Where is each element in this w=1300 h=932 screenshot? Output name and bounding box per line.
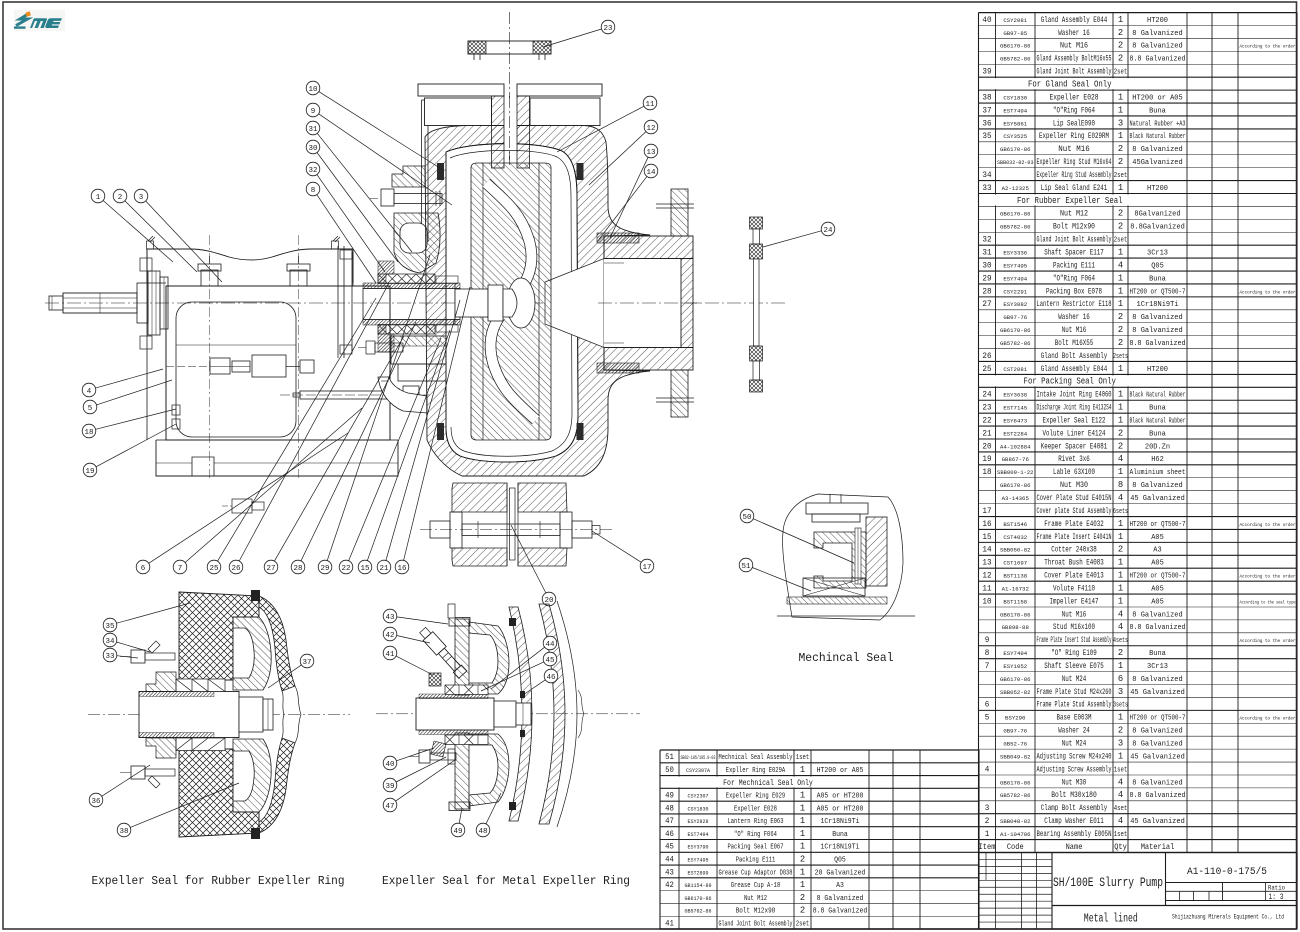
svg-text:Item: Item xyxy=(979,843,996,852)
svg-text:Expeller Ring E029RM: Expeller Ring E029RM xyxy=(1039,133,1109,141)
svg-text:According to the order: According to the order xyxy=(1240,638,1296,644)
svg-text:25: 25 xyxy=(209,565,219,573)
svg-text:HT200 or QT500-7: HT200 or QT500-7 xyxy=(1130,288,1186,296)
svg-text:"O" Ring F064: "O" Ring F064 xyxy=(734,831,777,839)
svg-text:24: 24 xyxy=(823,227,833,235)
svg-text:2: 2 xyxy=(1118,441,1123,451)
svg-text:A05: A05 xyxy=(1151,534,1164,542)
svg-text:3Cr13: 3Cr13 xyxy=(1147,663,1168,671)
svg-text:BST1138: BST1138 xyxy=(1003,573,1027,580)
svg-text:1Cr18Ni9Ti: 1Cr18Ni9Ti xyxy=(1137,301,1179,309)
svg-text:1: 1 xyxy=(1118,390,1123,400)
svg-text:Nut M24: Nut M24 xyxy=(1062,741,1087,749)
svg-text:GB5782-86: GB5782-86 xyxy=(1000,792,1031,799)
svg-text:40: 40 xyxy=(982,15,991,25)
svg-text:8.8 Galvanized: 8.8 Galvanized xyxy=(1130,56,1186,64)
svg-text:Clamp Bolt Assembly: Clamp Bolt Assembly xyxy=(1041,805,1108,813)
svg-text:ESY3082: ESY3082 xyxy=(1003,301,1027,308)
svg-text:51: 51 xyxy=(665,752,674,762)
svg-text:8: 8 xyxy=(311,187,316,195)
svg-text:4: 4 xyxy=(1118,777,1123,787)
svg-text:Shijiazhuang Minerals Equipmen: Shijiazhuang Minerals Equipment Co., Ltd xyxy=(1172,914,1284,921)
svg-text:1: 1 xyxy=(1118,415,1123,425)
svg-text:2: 2 xyxy=(1118,157,1123,167)
svg-text:According to the order: According to the order xyxy=(1240,289,1296,295)
svg-text:A3-14365: A3-14365 xyxy=(1002,495,1030,502)
svg-text:13: 13 xyxy=(646,149,656,157)
svg-text:13: 13 xyxy=(982,558,991,568)
svg-text:44: 44 xyxy=(545,641,555,649)
svg-text:1: 1 xyxy=(1118,403,1123,413)
svg-text:2: 2 xyxy=(1118,41,1123,51)
svg-text:5: 5 xyxy=(985,713,990,723)
svg-text:45 Galvanized: 45 Galvanized xyxy=(1130,689,1185,697)
svg-text:8.8 Galvanized: 8.8 Galvanized xyxy=(1130,792,1186,800)
svg-text:2: 2 xyxy=(1118,428,1123,438)
svg-text:Nut M30: Nut M30 xyxy=(1062,779,1087,787)
svg-text:Expeller Ring E029: Expeller Ring E029 xyxy=(726,793,786,801)
svg-text:34: 34 xyxy=(982,170,991,180)
svg-text:34: 34 xyxy=(105,638,115,646)
svg-text:4set: 4set xyxy=(1114,805,1128,813)
svg-text:8: 8 xyxy=(1118,480,1123,490)
svg-text:ESY7495: ESY7495 xyxy=(688,856,709,863)
svg-text:45 Galvanized: 45 Galvanized xyxy=(1130,495,1185,503)
svg-text:3: 3 xyxy=(1118,687,1123,697)
svg-text:Expeller E028: Expeller E028 xyxy=(1050,94,1099,102)
svg-text:50: 50 xyxy=(665,765,674,775)
svg-text:26: 26 xyxy=(231,565,241,573)
svg-text:18: 18 xyxy=(982,467,991,477)
svg-text:CST2081: CST2081 xyxy=(1003,366,1027,373)
svg-text:Discharge Joint Ring E4132S4: Discharge Joint Ring E4132S4 xyxy=(1037,405,1112,413)
svg-text:A1-110-0-175/5: A1-110-0-175/5 xyxy=(1187,866,1267,878)
svg-text:28: 28 xyxy=(293,565,302,573)
svg-text:EST2899: EST2899 xyxy=(688,869,709,876)
svg-text:A05: A05 xyxy=(1151,560,1164,568)
svg-text:8 Galvanized: 8 Galvanized xyxy=(1132,482,1182,490)
svg-text:GB5782-86: GB5782-86 xyxy=(1000,340,1031,347)
svg-text:SBB009-1-22: SBB009-1-22 xyxy=(997,469,1034,476)
svg-text:Packing E111: Packing E111 xyxy=(736,856,776,864)
svg-text:Mechincal Seal: Mechincal Seal xyxy=(799,651,894,665)
svg-text:2: 2 xyxy=(800,854,805,864)
svg-text:Frame Plate Stud Assembly: Frame Plate Stud Assembly xyxy=(1037,702,1112,710)
svg-text:1: 1 xyxy=(800,791,805,801)
svg-text:Packing Seal E067: Packing Seal E067 xyxy=(727,844,783,852)
svg-text:8 Galvanized: 8 Galvanized xyxy=(1132,779,1182,787)
svg-text:1: 1 xyxy=(800,867,805,877)
svg-text:4: 4 xyxy=(1118,609,1123,619)
svg-text:Material: Material xyxy=(1141,843,1175,852)
svg-text:2: 2 xyxy=(1118,338,1123,348)
svg-text:Gland Assembly E044: Gland Assembly E044 xyxy=(1041,17,1108,25)
svg-text:1: 1 xyxy=(800,803,805,813)
svg-text:21: 21 xyxy=(982,428,991,438)
svg-text:42: 42 xyxy=(385,632,394,640)
svg-text:1: 1 xyxy=(1118,532,1123,542)
svg-text:8 Galvanized: 8 Galvanized xyxy=(1132,728,1182,736)
svg-text:16: 16 xyxy=(982,519,991,529)
svg-text:9: 9 xyxy=(311,108,316,116)
svg-text:HT200: HT200 xyxy=(1147,185,1168,193)
svg-text:29: 29 xyxy=(320,565,329,573)
svg-text:Impeller E4147: Impeller E4147 xyxy=(1050,598,1099,606)
svg-text:ESY3336: ESY3336 xyxy=(1003,249,1027,256)
svg-text:8 Galvanized: 8 Galvanized xyxy=(1132,314,1182,322)
svg-text:Gland Bolt Assembly: Gland Bolt Assembly xyxy=(1041,353,1108,361)
svg-text:Cover Plate Stud E4015N: Cover Plate Stud E4015N xyxy=(1037,495,1112,503)
svg-text:Q05: Q05 xyxy=(1151,262,1164,270)
svg-text:16: 16 xyxy=(397,565,407,573)
svg-text:ESY1052: ESY1052 xyxy=(1003,663,1027,670)
svg-text:46: 46 xyxy=(665,829,674,839)
svg-text:A05 or HT200: A05 or HT200 xyxy=(817,793,864,801)
svg-text:Nut M30: Nut M30 xyxy=(1060,482,1088,490)
svg-text:ESY7494: ESY7494 xyxy=(1003,650,1027,657)
svg-text:19: 19 xyxy=(982,454,991,464)
svg-text:CSY1830: CSY1830 xyxy=(688,805,710,812)
svg-text:Bolt M30x180: Bolt M30x180 xyxy=(1051,792,1097,800)
svg-text:4: 4 xyxy=(1118,816,1123,826)
svg-text:1: 1 xyxy=(1118,661,1123,671)
svg-text:45 Galvanized: 45 Galvanized xyxy=(1130,753,1185,761)
svg-text:1: 1 xyxy=(800,880,805,890)
svg-text:Keeper Spacer E4081: Keeper Spacer E4081 xyxy=(1041,443,1108,451)
svg-text:31: 31 xyxy=(308,126,318,134)
svg-text:Packing Box E078: Packing Box E078 xyxy=(1046,288,1102,296)
svg-text:1: 1 xyxy=(1118,273,1123,283)
svg-text:2set: 2set xyxy=(1114,237,1128,245)
svg-text:SBB048-82: SBB048-82 xyxy=(1000,818,1031,825)
svg-text:GB6170-86: GB6170-86 xyxy=(1000,43,1031,50)
svg-text:A05: A05 xyxy=(1151,585,1164,593)
svg-text:SBB052-82: SBB052-82 xyxy=(1000,689,1031,696)
svg-text:1Cr18Ni9Ti: 1Cr18Ni9Ti xyxy=(821,818,860,826)
svg-text:6: 6 xyxy=(141,565,146,573)
svg-text:GB5782-86: GB5782-86 xyxy=(1000,224,1031,231)
svg-text:Frame Plate Insert E4041N: Frame Plate Insert E4041N xyxy=(1037,534,1112,542)
svg-text:Nut M16: Nut M16 xyxy=(1062,611,1087,619)
svg-text:17: 17 xyxy=(642,564,651,572)
svg-text:4: 4 xyxy=(1118,493,1123,503)
svg-text:HT200: HT200 xyxy=(1147,17,1168,25)
svg-text:CSY1830: CSY1830 xyxy=(1003,94,1027,101)
svg-text:22: 22 xyxy=(341,565,350,573)
svg-text:2: 2 xyxy=(1118,222,1123,232)
svg-text:41: 41 xyxy=(665,918,674,928)
svg-text:32: 32 xyxy=(982,235,991,245)
svg-text:According to the order: According to the order xyxy=(1240,522,1296,528)
svg-text:1: 1 xyxy=(96,194,101,202)
svg-text:BST1546: BST1546 xyxy=(1003,521,1027,528)
svg-text:3: 3 xyxy=(985,803,990,813)
svg-text:Expeller E028: Expeller E028 xyxy=(734,805,777,813)
svg-text:H62: H62 xyxy=(1151,456,1164,464)
svg-text:Volute Liner E4124: Volute Liner E4124 xyxy=(1043,430,1106,438)
svg-text:HT200 or QT500-7: HT200 or QT500-7 xyxy=(1130,573,1186,581)
svg-text:45: 45 xyxy=(545,657,555,665)
svg-text:Aluminium sheet: Aluminium sheet xyxy=(1130,469,1186,477)
svg-text:38: 38 xyxy=(982,92,991,102)
svg-text:ESY3638: ESY3638 xyxy=(1003,392,1027,399)
svg-text:Gland Joint Bolt Assembly: Gland Joint Bolt Assembly xyxy=(1037,69,1112,77)
svg-text:1: 1 xyxy=(800,816,805,826)
svg-text:GB52-76: GB52-76 xyxy=(1003,741,1027,748)
svg-text:8 Galvanized: 8 Galvanized xyxy=(1132,676,1182,684)
svg-text:4: 4 xyxy=(87,388,92,396)
svg-text:1: 1 xyxy=(1118,713,1123,723)
svg-text:35: 35 xyxy=(982,131,991,141)
svg-text:1: 1 xyxy=(1118,183,1123,193)
svg-text:8 Galvanized: 8 Galvanized xyxy=(1132,741,1182,749)
svg-text:49: 49 xyxy=(453,828,462,836)
svg-text:Gland Assembly BoltM16x55: Gland Assembly BoltM16x55 xyxy=(1037,56,1112,64)
svg-text:Q05: Q05 xyxy=(834,856,846,864)
svg-text:HT200 or QT500-7: HT200 or QT500-7 xyxy=(1130,521,1186,529)
svg-text:Lantern Restrictor E118: Lantern Restrictor E118 xyxy=(1037,301,1112,309)
svg-text:CST4032: CST4032 xyxy=(1003,534,1027,541)
svg-text:ESY6473: ESY6473 xyxy=(1003,417,1027,424)
svg-text:25: 25 xyxy=(982,364,991,374)
svg-text:For Packing Seal Only: For Packing Seal Only xyxy=(1024,376,1117,387)
svg-text:"O"Ring F064: "O"Ring F064 xyxy=(1053,107,1095,115)
svg-text:20 Galvanized: 20 Galvanized xyxy=(815,869,866,877)
svg-text:Buna: Buna xyxy=(1149,275,1166,283)
svg-text:21: 21 xyxy=(379,565,389,573)
svg-text:Clamp Washer E011: Clamp Washer E011 xyxy=(1044,818,1104,826)
svg-text:Code: Code xyxy=(1007,843,1024,852)
svg-text:12: 12 xyxy=(646,125,655,133)
svg-text:GB898-88: GB898-88 xyxy=(1002,624,1030,631)
svg-text:Black Natural Rubber: Black Natural Rubber xyxy=(1130,417,1186,425)
svg-text:2set: 2set xyxy=(1114,172,1128,180)
svg-text:Nut M16: Nut M16 xyxy=(1060,43,1088,51)
svg-text:"O"Ring F064: "O"Ring F064 xyxy=(1053,275,1095,283)
svg-text:12: 12 xyxy=(982,571,991,581)
svg-text:41: 41 xyxy=(385,651,395,659)
svg-text:43: 43 xyxy=(385,614,395,622)
svg-text:27: 27 xyxy=(266,565,275,573)
svg-text:51: 51 xyxy=(741,563,751,571)
svg-text:Cover Plate E4013: Cover Plate E4013 xyxy=(1044,573,1104,581)
svg-text:EST7494: EST7494 xyxy=(1003,107,1027,114)
svg-text:14: 14 xyxy=(646,169,656,177)
svg-text:1set: 1set xyxy=(1114,766,1128,774)
svg-text:Buna: Buna xyxy=(1149,430,1166,438)
svg-text:GB5782-86: GB5782-86 xyxy=(685,908,712,915)
svg-text:8: 8 xyxy=(985,648,990,658)
svg-text:1: 1 xyxy=(985,829,990,839)
svg-text:EST7145: EST7145 xyxy=(1003,405,1027,412)
svg-text:Expller Ring E029A: Expller Ring E029A xyxy=(726,767,786,775)
svg-text:GB1154-89: GB1154-89 xyxy=(685,882,712,889)
svg-text:2: 2 xyxy=(1118,312,1123,322)
svg-text:36: 36 xyxy=(91,798,101,806)
svg-text:1: 1 xyxy=(800,842,805,852)
svg-text:Mechnical Seal Assembly: Mechnical Seal Assembly xyxy=(719,754,793,762)
svg-text:48: 48 xyxy=(478,828,487,836)
svg-text:Rivet 3x6: Rivet 3x6 xyxy=(1058,456,1090,464)
svg-text:1: 1 xyxy=(800,765,805,775)
svg-text:26: 26 xyxy=(982,351,991,361)
svg-text:2: 2 xyxy=(1118,545,1123,555)
svg-text:According to the seal type: According to the seal type xyxy=(1240,599,1296,605)
svg-text:30: 30 xyxy=(308,145,318,153)
svg-text:Black Natural Rubber: Black Natural Rubber xyxy=(1130,392,1186,400)
svg-text:Expeller Seal for Rubber Expel: Expeller Seal for Rubber Expeller Ring xyxy=(92,875,345,888)
svg-text:4: 4 xyxy=(1118,454,1123,464)
svg-text:A2-12325: A2-12325 xyxy=(1002,185,1030,192)
svg-text:20D.Zn: 20D.Zn xyxy=(1145,443,1170,451)
svg-text:36: 36 xyxy=(982,118,991,128)
svg-text:8.8Galvanized: 8.8Galvanized xyxy=(1130,224,1185,232)
svg-text:Gland Joint Bolt Assembly: Gland Joint Bolt Assembly xyxy=(1037,237,1112,245)
svg-text:Lable 63X100: Lable 63X100 xyxy=(1053,469,1095,477)
svg-text:1: 1 xyxy=(1118,286,1123,296)
svg-text:22: 22 xyxy=(982,415,991,425)
svg-text:GB6170-86: GB6170-86 xyxy=(1000,482,1031,489)
svg-text:Buna: Buna xyxy=(1149,650,1166,658)
svg-text:17: 17 xyxy=(982,506,991,516)
svg-text:SBB032-82-03: SBB032-82-03 xyxy=(997,159,1034,166)
svg-text:45 Galvanized: 45 Galvanized xyxy=(1130,818,1185,826)
svg-text:2: 2 xyxy=(1118,648,1123,658)
svg-text:1: 1 xyxy=(1118,131,1123,141)
svg-text:EST7494: EST7494 xyxy=(688,831,710,838)
svg-text:31: 31 xyxy=(982,247,991,257)
svg-text:2: 2 xyxy=(1118,726,1123,736)
svg-text:Bolt M12x90: Bolt M12x90 xyxy=(736,908,776,916)
svg-text:5: 5 xyxy=(88,405,93,413)
svg-text:15: 15 xyxy=(360,565,370,573)
svg-text:3sets: 3sets xyxy=(1113,702,1128,710)
svg-text:According to the order: According to the order xyxy=(1240,716,1296,722)
svg-text:3Cr13: 3Cr13 xyxy=(1147,249,1168,257)
svg-text:A05 or HT200: A05 or HT200 xyxy=(817,805,864,813)
svg-text:CSY2291: CSY2291 xyxy=(1003,288,1027,295)
svg-text:Metal lined: Metal lined xyxy=(1084,913,1138,926)
svg-text:50: 50 xyxy=(742,514,752,522)
svg-text:SBB050-82: SBB050-82 xyxy=(1000,547,1031,554)
svg-text:Shaft Sleeve E075: Shaft Sleeve E075 xyxy=(1044,663,1104,671)
svg-text:GB6170-86: GB6170-86 xyxy=(1000,779,1031,786)
svg-text:42: 42 xyxy=(665,880,674,890)
svg-text:Intake Joint Ring E4060: Intake Joint Ring E4060 xyxy=(1037,392,1112,400)
svg-text:30: 30 xyxy=(982,260,991,270)
svg-text:2sets: 2sets xyxy=(1113,353,1128,361)
svg-text:Adjusting Screw M24x240: Adjusting Screw M24x240 xyxy=(1037,753,1112,761)
svg-text:4: 4 xyxy=(1118,790,1123,800)
svg-text:32: 32 xyxy=(308,167,317,175)
svg-text:1: 1 xyxy=(1118,299,1123,309)
svg-text:1: 1 xyxy=(1118,583,1123,593)
svg-text:GB6170-86: GB6170-86 xyxy=(685,895,712,902)
svg-text:49: 49 xyxy=(665,791,674,801)
svg-text:33: 33 xyxy=(105,653,115,661)
svg-text:4: 4 xyxy=(985,764,990,774)
svg-text:SBB049-82: SBB049-82 xyxy=(1000,753,1031,760)
svg-text:Grease Cup A-18: Grease Cup A-18 xyxy=(731,882,781,890)
svg-text:Washer 16: Washer 16 xyxy=(1058,314,1090,322)
svg-text:40: 40 xyxy=(385,761,395,769)
svg-text:Lip SealE090: Lip SealE090 xyxy=(1053,120,1095,128)
svg-text:GB867-76: GB867-76 xyxy=(1002,456,1030,463)
svg-text:10: 10 xyxy=(982,596,991,606)
svg-text:A4-102884: A4-102884 xyxy=(1000,443,1031,450)
svg-text:9: 9 xyxy=(985,635,990,645)
svg-text:2set: 2set xyxy=(796,920,810,928)
svg-text:8 Galvanized: 8 Galvanized xyxy=(1132,43,1182,51)
svg-text:1: 1 xyxy=(1118,92,1123,102)
svg-text:HT200 or QT500-7: HT200 or QT500-7 xyxy=(1130,715,1186,723)
svg-text:2: 2 xyxy=(1118,325,1123,335)
svg-text:1: 1 xyxy=(1118,558,1123,568)
svg-text:CSY2307: CSY2307 xyxy=(688,793,709,800)
svg-text:45Galvanized: 45Galvanized xyxy=(1132,159,1182,167)
svg-text:38: 38 xyxy=(119,828,128,836)
svg-text:24: 24 xyxy=(982,390,991,400)
svg-text:18: 18 xyxy=(84,429,93,437)
svg-text:2: 2 xyxy=(1118,209,1123,219)
svg-text:39: 39 xyxy=(982,67,991,77)
svg-text:7: 7 xyxy=(178,565,183,573)
svg-text:According to the order: According to the order xyxy=(1240,44,1296,50)
svg-text:47: 47 xyxy=(665,816,674,826)
svg-text:37: 37 xyxy=(302,659,311,667)
svg-text:ESY2828: ESY2828 xyxy=(688,818,709,825)
svg-text:Cotter 240x38: Cotter 240x38 xyxy=(1051,547,1097,555)
svg-text:6: 6 xyxy=(1118,674,1123,684)
svg-text:6sets: 6sets xyxy=(1113,508,1128,516)
svg-text:GB5782-86: GB5782-86 xyxy=(1000,56,1031,63)
svg-text:Gland Assembly E044: Gland Assembly E044 xyxy=(1041,366,1108,374)
svg-text:Expeller Ring Stud Assembly: Expeller Ring Stud Assembly xyxy=(1037,172,1112,180)
svg-text:Bolt M16X55: Bolt M16X55 xyxy=(1055,340,1094,348)
svg-text:Buna: Buna xyxy=(1149,107,1166,115)
svg-text:CST1697: CST1697 xyxy=(1003,560,1027,567)
svg-text:Name: Name xyxy=(1066,843,1083,852)
svg-text:8.8 Galvanized: 8.8 Galvanized xyxy=(813,908,868,916)
svg-text:8 Galvanized: 8 Galvanized xyxy=(817,895,864,903)
svg-text:1set: 1set xyxy=(796,754,810,762)
svg-text:1: 1 xyxy=(1118,15,1123,25)
svg-text:ESY5861: ESY5861 xyxy=(1003,120,1027,127)
svg-text:2: 2 xyxy=(800,906,805,916)
svg-text:3: 3 xyxy=(139,194,144,202)
svg-text:Expeller Seal for Metal Expell: Expeller Seal for Metal Expeller Ring xyxy=(382,875,630,888)
svg-text:1: 1 xyxy=(1118,247,1123,257)
svg-text:Frame Plate Stud M24x260: Frame Plate Stud M24x260 xyxy=(1037,689,1112,697)
svg-text:4sets: 4sets xyxy=(1113,637,1128,645)
svg-text:SB02-105/105.0-03: SB02-105/105.0-03 xyxy=(681,754,716,761)
svg-text:8.8 Galvanized: 8.8 Galvanized xyxy=(1130,624,1186,632)
svg-text:Cover plate Stud Assembly: Cover plate Stud Assembly xyxy=(1037,508,1112,516)
svg-text:BST1158: BST1158 xyxy=(1003,598,1027,605)
svg-text:Nut M16: Nut M16 xyxy=(1058,146,1090,154)
svg-text:Buna: Buna xyxy=(1149,405,1166,413)
svg-text:Bearing Assembly E005N: Bearing Assembly E005N xyxy=(1037,831,1112,839)
svg-text:3: 3 xyxy=(1118,118,1123,128)
svg-text:A05: A05 xyxy=(1151,598,1164,606)
svg-text:1: 1 xyxy=(800,829,805,839)
svg-text:Shaft Spacer E117: Shaft Spacer E117 xyxy=(1044,249,1104,257)
svg-text:Ratio: Ratio xyxy=(1268,885,1285,892)
svg-text:43: 43 xyxy=(665,867,674,877)
svg-text:GB6170-86: GB6170-86 xyxy=(1000,327,1031,334)
svg-text:1: 1 xyxy=(1118,596,1123,606)
svg-text:15: 15 xyxy=(982,532,991,542)
